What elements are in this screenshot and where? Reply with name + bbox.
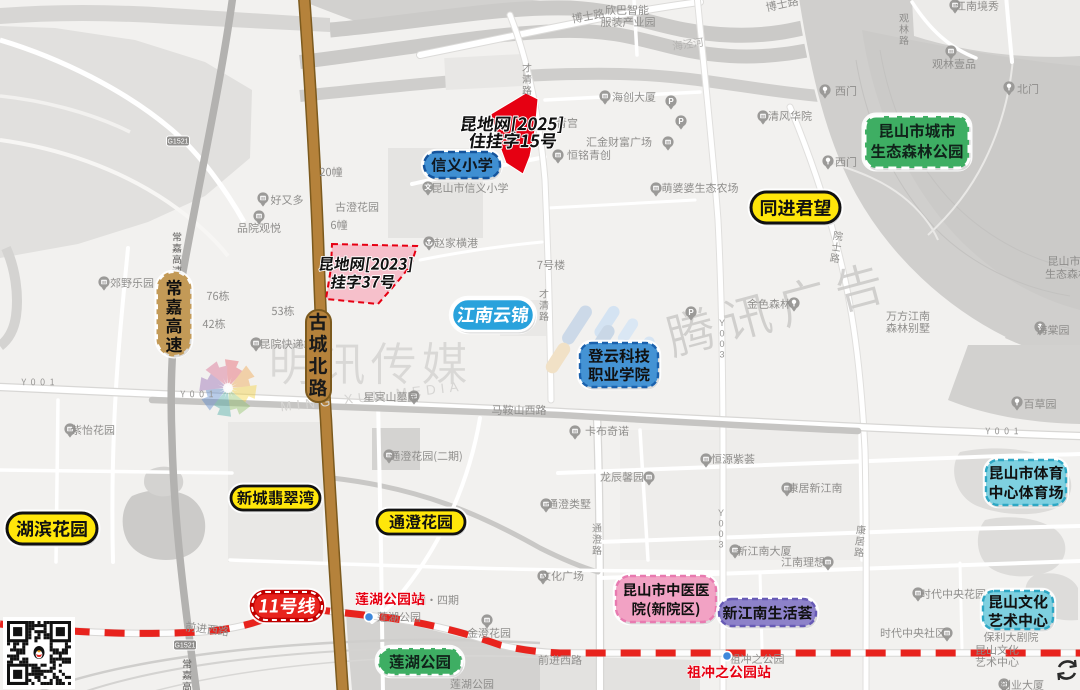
- svg-text:Y: Y: [719, 318, 725, 328]
- svg-text:G1521: G1521: [167, 139, 188, 146]
- svg-text:3: 3: [719, 350, 724, 360]
- svg-text:0: 0: [719, 329, 724, 339]
- svg-text:P: P: [678, 117, 684, 126]
- svg-text:P: P: [688, 308, 694, 317]
- svg-text:Y: Y: [718, 508, 724, 518]
- svg-text:P: P: [668, 97, 674, 106]
- svg-text:0: 0: [718, 529, 723, 539]
- svg-text:G1521: G1521: [174, 643, 195, 650]
- svg-text:3: 3: [718, 540, 723, 550]
- svg-text:0: 0: [719, 339, 724, 349]
- svg-text:0: 0: [718, 519, 723, 529]
